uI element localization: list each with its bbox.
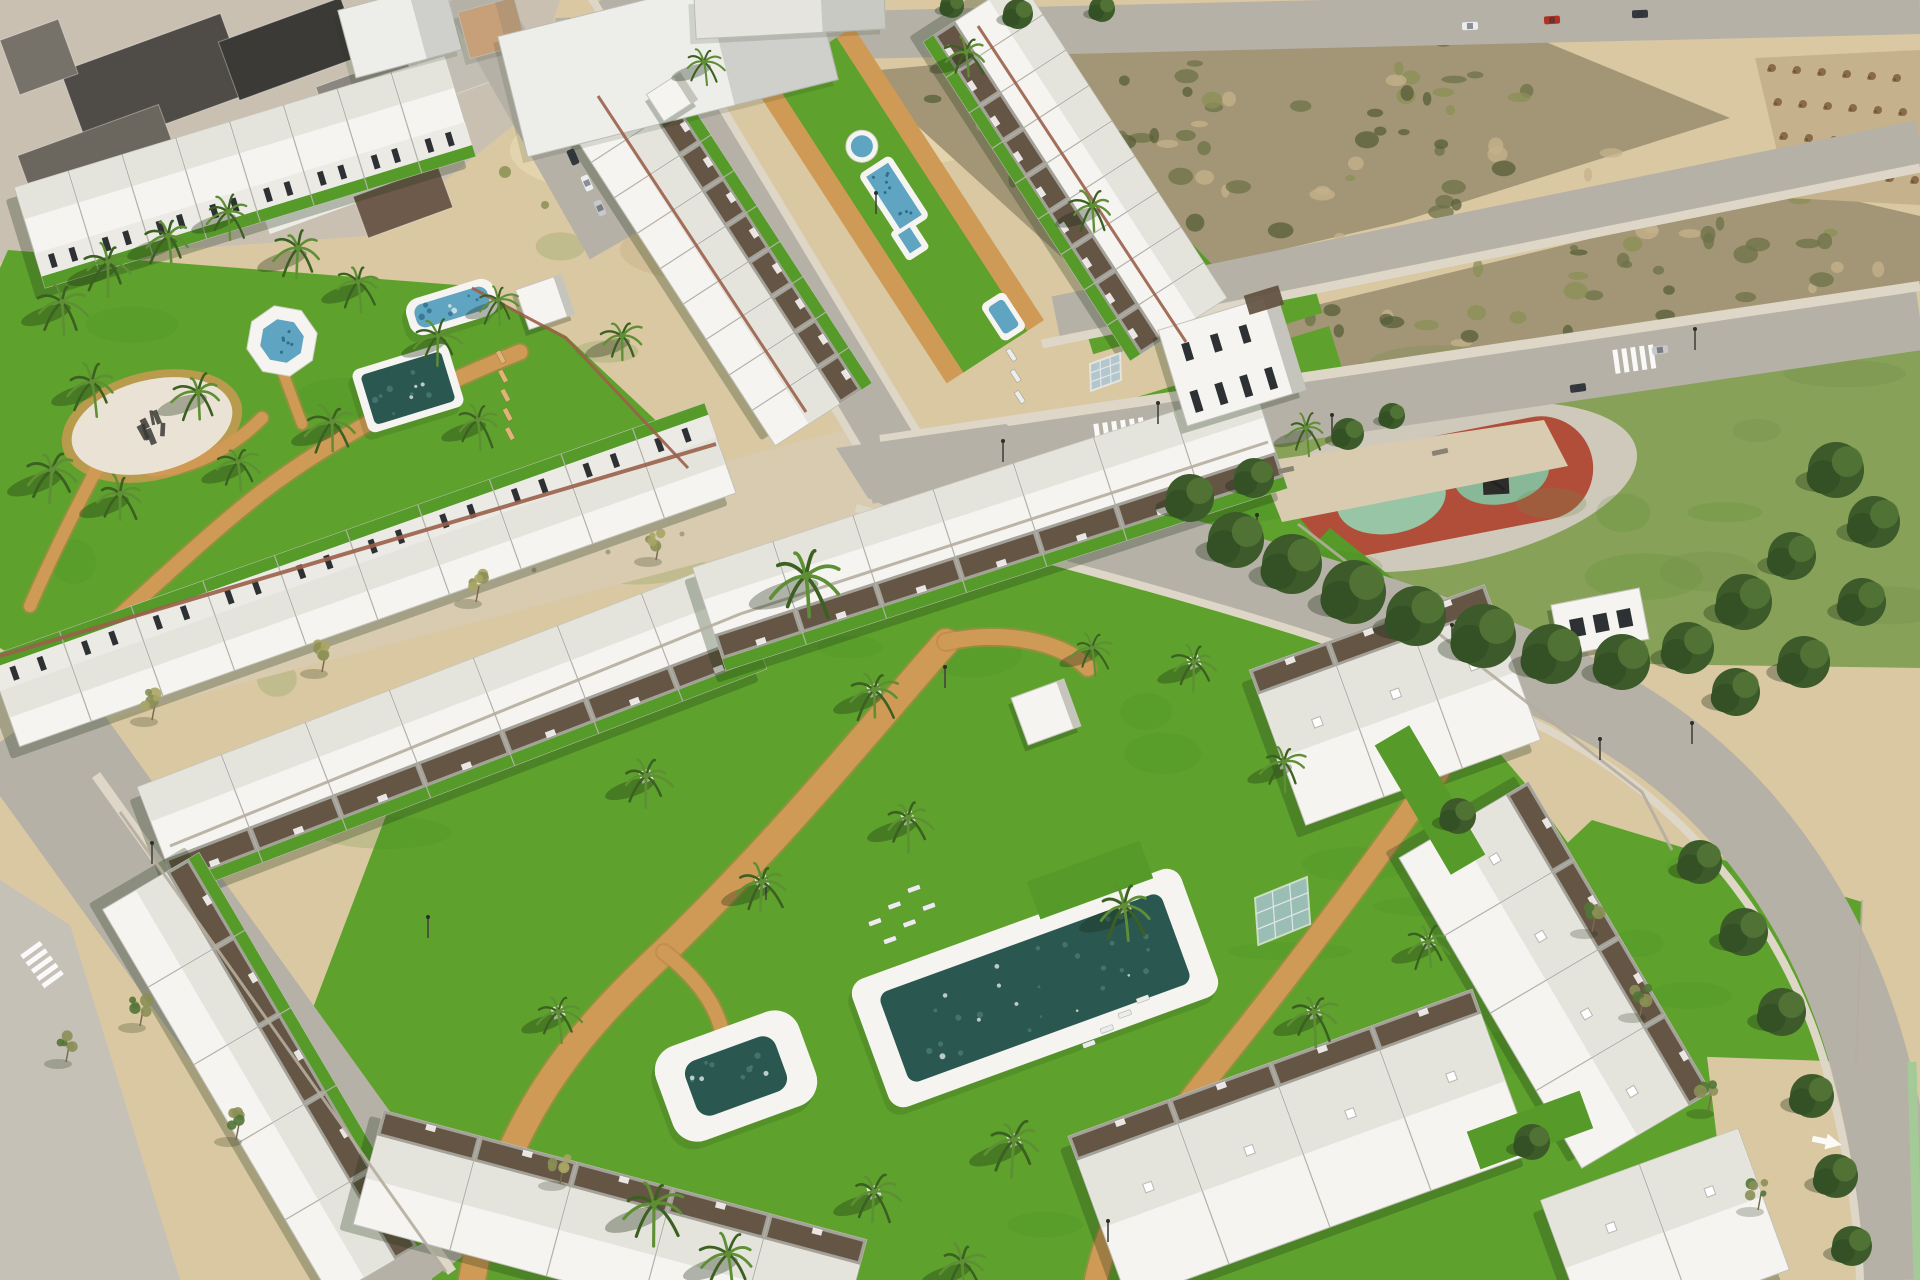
grass-mottle [85,307,178,343]
scrub-patch [1600,148,1623,157]
palm-crown [1121,903,1128,910]
palm-frond [437,336,438,366]
scrub-patch [1202,92,1222,109]
grass-mottle [1007,1212,1083,1237]
lamp-head [874,191,878,195]
scrub-patch [1467,305,1486,320]
tree-shadow [538,1181,566,1191]
dirt-mound-shadow [1767,68,1771,72]
tree-shadow [118,1023,146,1033]
palm-crown [235,459,240,464]
palm-crown [650,1200,657,1207]
tree-canopy-light [1849,1229,1871,1251]
palm-crown [1089,203,1094,208]
tree-foliage [62,1030,73,1041]
tree-foliage [1749,1181,1759,1191]
tree-foliage [1745,1190,1755,1200]
tree-foliage [318,650,329,661]
scrub-patch [1872,261,1884,277]
scrub-patch [1622,261,1632,268]
tree-canopy-light [1809,1077,1833,1101]
tree-canopy-light [1346,420,1364,438]
scrub-patch [1157,140,1178,148]
palm-crown [435,333,440,338]
scrub-patch [1176,130,1196,141]
scrub-patch [1584,168,1592,182]
scrub-patch [1441,76,1466,84]
dirt-mound-shadow [1848,108,1852,112]
palm-crown [1090,646,1095,651]
scrub-patch [924,95,942,103]
palm-frond [908,818,909,853]
tree-shadow [130,717,158,727]
scrub-patch [1467,71,1483,78]
scrub-patch [1195,170,1214,185]
palm-crown [871,1189,877,1195]
palm-crown [555,1009,560,1014]
dirt-mound-shadow [1779,136,1783,140]
tree-shadow [1736,1207,1764,1217]
scrub-patch [1222,91,1236,106]
tree-canopy-light [1800,640,1829,669]
bike-lane [1912,1062,1918,1280]
aerial-render [0,0,1920,1280]
tree-canopy-light [1412,591,1445,624]
tree-foliage [129,996,136,1003]
scrub-patch [1623,236,1642,251]
tree-foliage [1640,997,1649,1006]
tree-foliage [656,529,665,538]
palm-crown [475,417,480,422]
scrub-patch [1348,157,1364,170]
lamp-head [426,915,430,919]
tree-shadow [1618,1013,1646,1023]
tree-foliage [1761,1179,1769,1187]
palm-crown [225,209,230,214]
scrub-patch [1451,199,1461,211]
palm-crown [871,687,877,693]
tree-foliage [548,1163,557,1172]
tree-foliage [153,695,159,701]
lamp-head [1598,737,1602,741]
palm-crown [619,333,624,338]
tree-shadow [44,1059,72,1069]
palm-crown [959,1259,965,1265]
scrub-patch [1653,266,1664,275]
scrub-patch [1568,272,1588,280]
aerial-render-stage [0,0,1920,1280]
car [1632,10,1648,19]
tree-foliage [228,1108,238,1118]
scrub-patch [1149,128,1159,143]
dirt-mound-shadow [1792,70,1796,74]
tree-canopy-light [1455,801,1475,821]
scrub-patch [1488,137,1503,154]
dirt-mound-shadow [1817,72,1821,76]
scrub-patch [1174,69,1198,83]
tree-canopy-light [1349,565,1384,600]
tree-shadow [454,599,482,609]
tree-canopy-light [1186,478,1212,504]
palm-crown [355,279,360,284]
scrub-patch [1442,180,1466,195]
tree-shadow [1686,1109,1714,1119]
lamp-head [943,665,947,669]
palm-crown [1311,1009,1317,1015]
scrub-patch [1831,262,1844,273]
palm-crown [905,815,911,821]
tree-canopy-light [1251,461,1273,483]
scrub-patch [1446,105,1455,115]
scrub-patch [1679,229,1702,238]
scrub-patch [1433,88,1454,97]
palm-crown [165,233,171,239]
palm-crown [59,299,65,305]
palm-crown [963,49,968,54]
palm-crown [725,1251,732,1258]
lamp-head [1693,327,1697,331]
scrub-patch [1355,131,1379,148]
scrub-patch [1315,186,1330,195]
scrub-patch [1168,168,1193,185]
scrub-patch [1473,259,1483,277]
tree-foliage [140,701,150,711]
scrub-patch [1414,320,1439,330]
lamp-head [1330,413,1334,417]
palm-crown [643,773,649,779]
grass-mottle [1648,982,1732,1009]
scrub-patch [1817,233,1832,249]
palm-crown [105,259,111,265]
tree-foliage [141,1006,152,1017]
tree-canopy-light [1788,536,1814,562]
palm-crown [1281,759,1286,764]
tree-canopy-light [1016,1,1033,18]
dirt-mound-shadow [1898,112,1902,116]
scrub-patch [1187,60,1203,66]
scrub-patch [1423,92,1432,106]
palm-frond [760,882,762,911]
tree-canopy-light [1697,843,1721,867]
scrub-patch [1323,304,1340,316]
plaza-logo-mark [160,423,165,437]
scrub-patch [1197,141,1211,155]
scrub-patch [1386,74,1407,86]
scrub-patch [1367,109,1383,118]
lamp-head [1450,623,1454,627]
grass-mottle [1124,733,1201,774]
palm-crown [1191,659,1196,664]
grass-mottle [1687,502,1762,522]
scrub-patch [1119,75,1130,85]
tree-shadow [1570,929,1598,939]
tree-canopy-light [1479,609,1514,644]
rubble [606,550,611,555]
tree-canopy-light [1732,672,1758,698]
palm-frond [874,690,875,717]
car-windshield [1637,11,1643,17]
tree-shadow [634,557,662,567]
tree-canopy-light [1684,626,1713,655]
palm-crown [295,245,301,251]
palm-crown [117,491,123,497]
tree-canopy-light [1390,405,1404,419]
rubble [680,532,685,537]
scrub-patch [1381,316,1405,328]
tree-foliage [320,641,330,651]
scrub-patch [1735,292,1756,302]
tree-canopy-light [1618,638,1649,669]
scrub-patch [1733,245,1758,263]
dirt-mound-shadow [1867,76,1871,80]
tree-foliage [558,1162,569,1173]
lamp-head [1156,401,1160,405]
palm-frond [332,422,333,451]
scrub-patch [1570,245,1578,251]
grass-mottle [1596,494,1650,532]
scrub-patch [1796,239,1821,249]
palm-frond [198,392,200,419]
scrub-patch [1434,139,1448,149]
car [1544,15,1561,24]
dirt-mound-shadow [1873,110,1877,114]
tree-canopy-light [1740,912,1766,938]
palm-frond [872,1192,874,1222]
lamp-head [1255,513,1259,517]
tree-canopy-light [1740,578,1771,609]
palm-crown [496,298,501,303]
lamp-head [1690,721,1694,725]
tree-foliage [647,537,656,546]
palm-crown [702,60,707,65]
tree-foliage [129,1003,140,1014]
scrub-patch [1510,311,1527,324]
grass-mottle [1733,419,1781,442]
palm-frond [1193,662,1194,692]
scrub-patch [1186,214,1205,232]
scrub-patch [1394,61,1403,75]
palm-frond [1284,762,1285,792]
scrub-patch [1268,222,1294,238]
scrub-patch [1345,175,1355,181]
tree-canopy-light [1778,992,1804,1018]
shrub [541,201,549,209]
scrub-patch [1507,92,1530,102]
dirt-mound-shadow [1773,102,1777,106]
tree-foliage [564,1154,572,1162]
tree-foliage [1708,1080,1717,1089]
car-windshield [1549,17,1555,23]
palm-crown [49,467,56,474]
tree-foliage [1592,909,1599,916]
tree-foliage [67,1041,78,1052]
palm-crown [329,419,335,425]
grass-mottle [1120,693,1172,730]
car [1462,22,1478,31]
tree-canopy-light [1858,582,1884,608]
dirt-mound-shadow [1842,74,1846,78]
tree-foliage [1760,1190,1766,1196]
scrub-patch [1809,272,1834,287]
scrub-patch [1400,85,1413,101]
tree-foliage [140,994,153,1007]
tree-shadow [300,669,328,679]
car-windshield [1575,385,1582,392]
palm-crown [89,379,95,385]
tree-canopy-light [1870,500,1899,529]
palm-crown [1011,1137,1018,1144]
tree-foliage [468,581,478,591]
scrub-patch [1182,87,1192,97]
tree-foliage [1694,1085,1707,1098]
tree-canopy-light [1548,629,1581,662]
scrub-patch [1290,100,1311,112]
grass-mottle [1516,488,1586,519]
dirt-mound-shadow [1798,104,1802,108]
scrub-patch [1334,324,1344,337]
lamp-head [150,841,154,845]
tree-foliage [474,574,483,583]
scrub-patch [1492,161,1516,177]
scrub-patch [1703,233,1714,250]
lamp-head [1106,1219,1110,1223]
dirt-mound-shadow [1823,106,1827,110]
scrub-patch [1226,180,1251,193]
palm-crown [195,389,201,395]
dirt-mound-shadow [1804,138,1808,142]
scrub-patch [1716,217,1725,231]
dirt-mound-shadow [1892,78,1896,82]
scrub-patch [1564,282,1588,300]
shrub [499,166,511,178]
roof-shade [821,0,886,32]
dirt-mound-shadow [1910,180,1914,184]
tree-canopy-light [1232,516,1263,547]
scrub-patch [1663,285,1675,294]
tree-foliage [145,689,152,696]
scrub-patch [1191,121,1208,128]
palm-crown [1304,426,1309,431]
car-windshield [1657,347,1664,354]
tree-canopy-light [1833,1157,1857,1181]
tree-foliage [1644,984,1653,993]
palm-frond [297,248,299,278]
palm-crown [802,572,810,580]
palm-crown [759,879,765,885]
scrub-patch [1398,129,1409,135]
tree-shadow [214,1137,242,1147]
scrub-patch [1461,330,1479,343]
lamp-head [1001,439,1005,443]
tree-canopy-light [1288,539,1321,572]
tree-canopy-light [1529,1127,1549,1147]
tree-canopy-light [1832,446,1863,477]
palm-crown [1425,939,1430,944]
car-windshield [1467,23,1473,29]
